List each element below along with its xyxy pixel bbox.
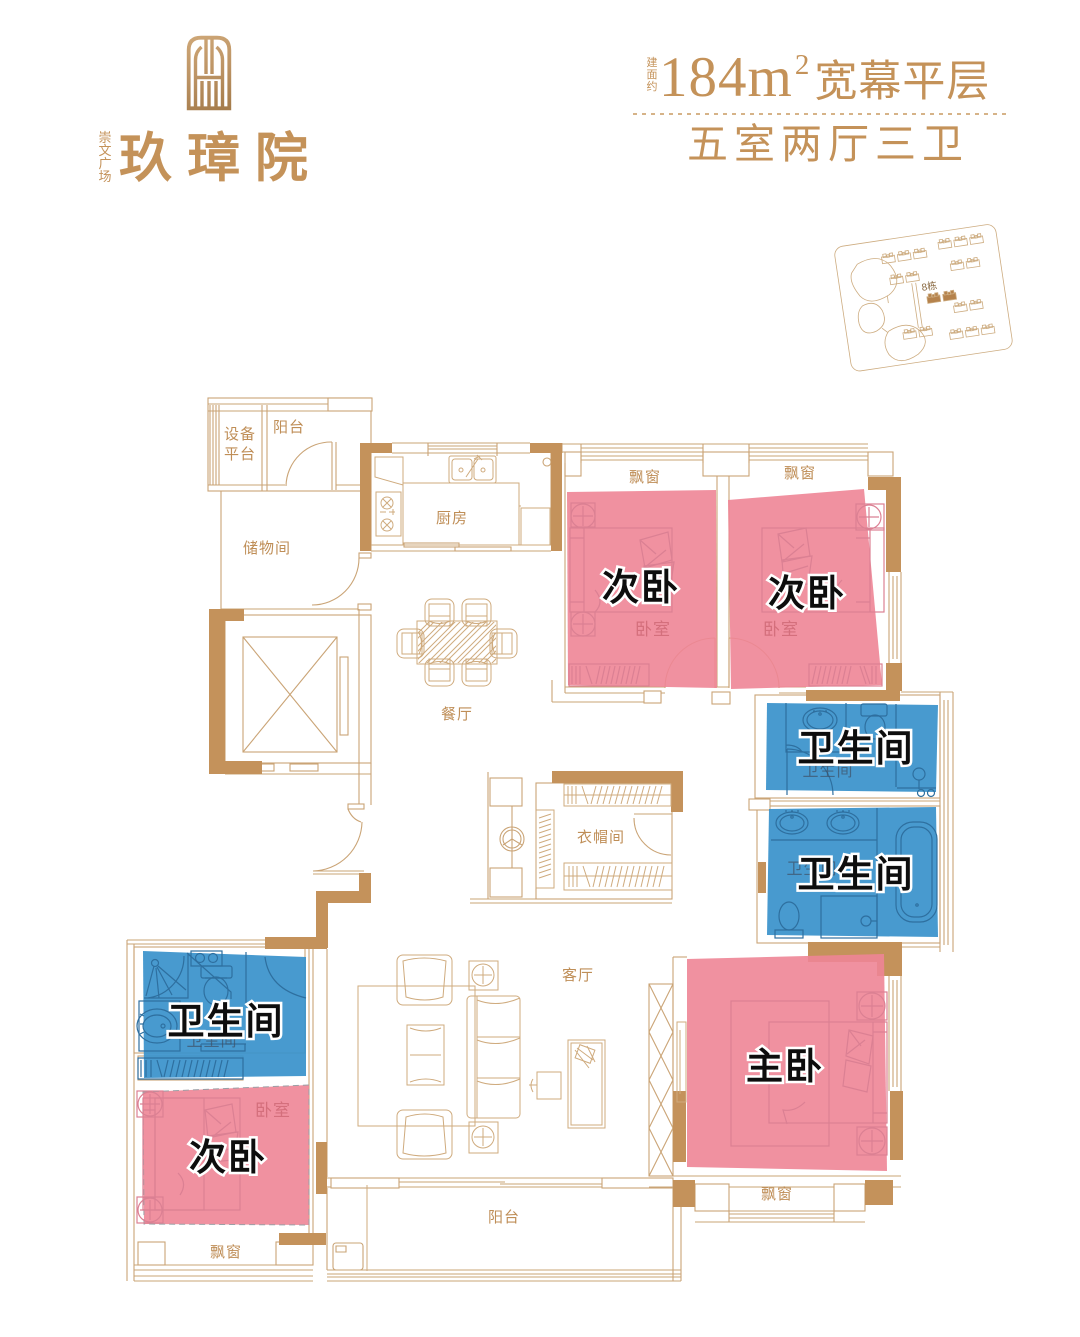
svg-text:阳台: 阳台 (488, 1209, 520, 1226)
svg-text:设备: 设备 (224, 426, 256, 443)
svg-text:约: 约 (647, 80, 658, 93)
svg-text:卫生间: 卫生间 (798, 728, 915, 769)
svg-text:卧室: 卧室 (255, 1101, 291, 1120)
svg-text:储物间: 储物间 (243, 540, 291, 557)
svg-text:卫生间: 卫生间 (168, 1001, 285, 1042)
svg-text:衣帽间: 衣帽间 (577, 829, 625, 846)
svg-text:次卧: 次卧 (768, 573, 846, 614)
svg-text:卧室: 卧室 (763, 620, 799, 639)
svg-text:厨房: 厨房 (436, 510, 468, 527)
svg-text:五室两厅三卫: 五室两厅三卫 (687, 121, 969, 167)
svg-text:平台: 平台 (224, 446, 256, 463)
svg-text:玖璋院: 玖璋院 (119, 129, 323, 188)
svg-text:餐厅: 餐厅 (441, 706, 473, 723)
svg-text:次卧: 次卧 (602, 567, 680, 608)
svg-text:飘窗: 飘窗 (784, 464, 816, 482)
svg-text:面: 面 (647, 69, 658, 81)
svg-text:场: 场 (98, 169, 111, 184)
svg-text:次卧: 次卧 (189, 1137, 267, 1178)
svg-text:飘窗: 飘窗 (210, 1243, 242, 1261)
svg-text:飘窗: 飘窗 (629, 468, 661, 486)
svg-text:卫生间: 卫生间 (798, 854, 915, 895)
svg-text:阳台: 阳台 (273, 419, 305, 436)
svg-text:飘窗: 飘窗 (761, 1185, 793, 1203)
svg-text:卧室: 卧室 (635, 620, 671, 639)
svg-text:建: 建 (647, 55, 658, 69)
svg-text:客厅: 客厅 (562, 967, 594, 984)
svg-text:主卧: 主卧 (746, 1046, 824, 1087)
